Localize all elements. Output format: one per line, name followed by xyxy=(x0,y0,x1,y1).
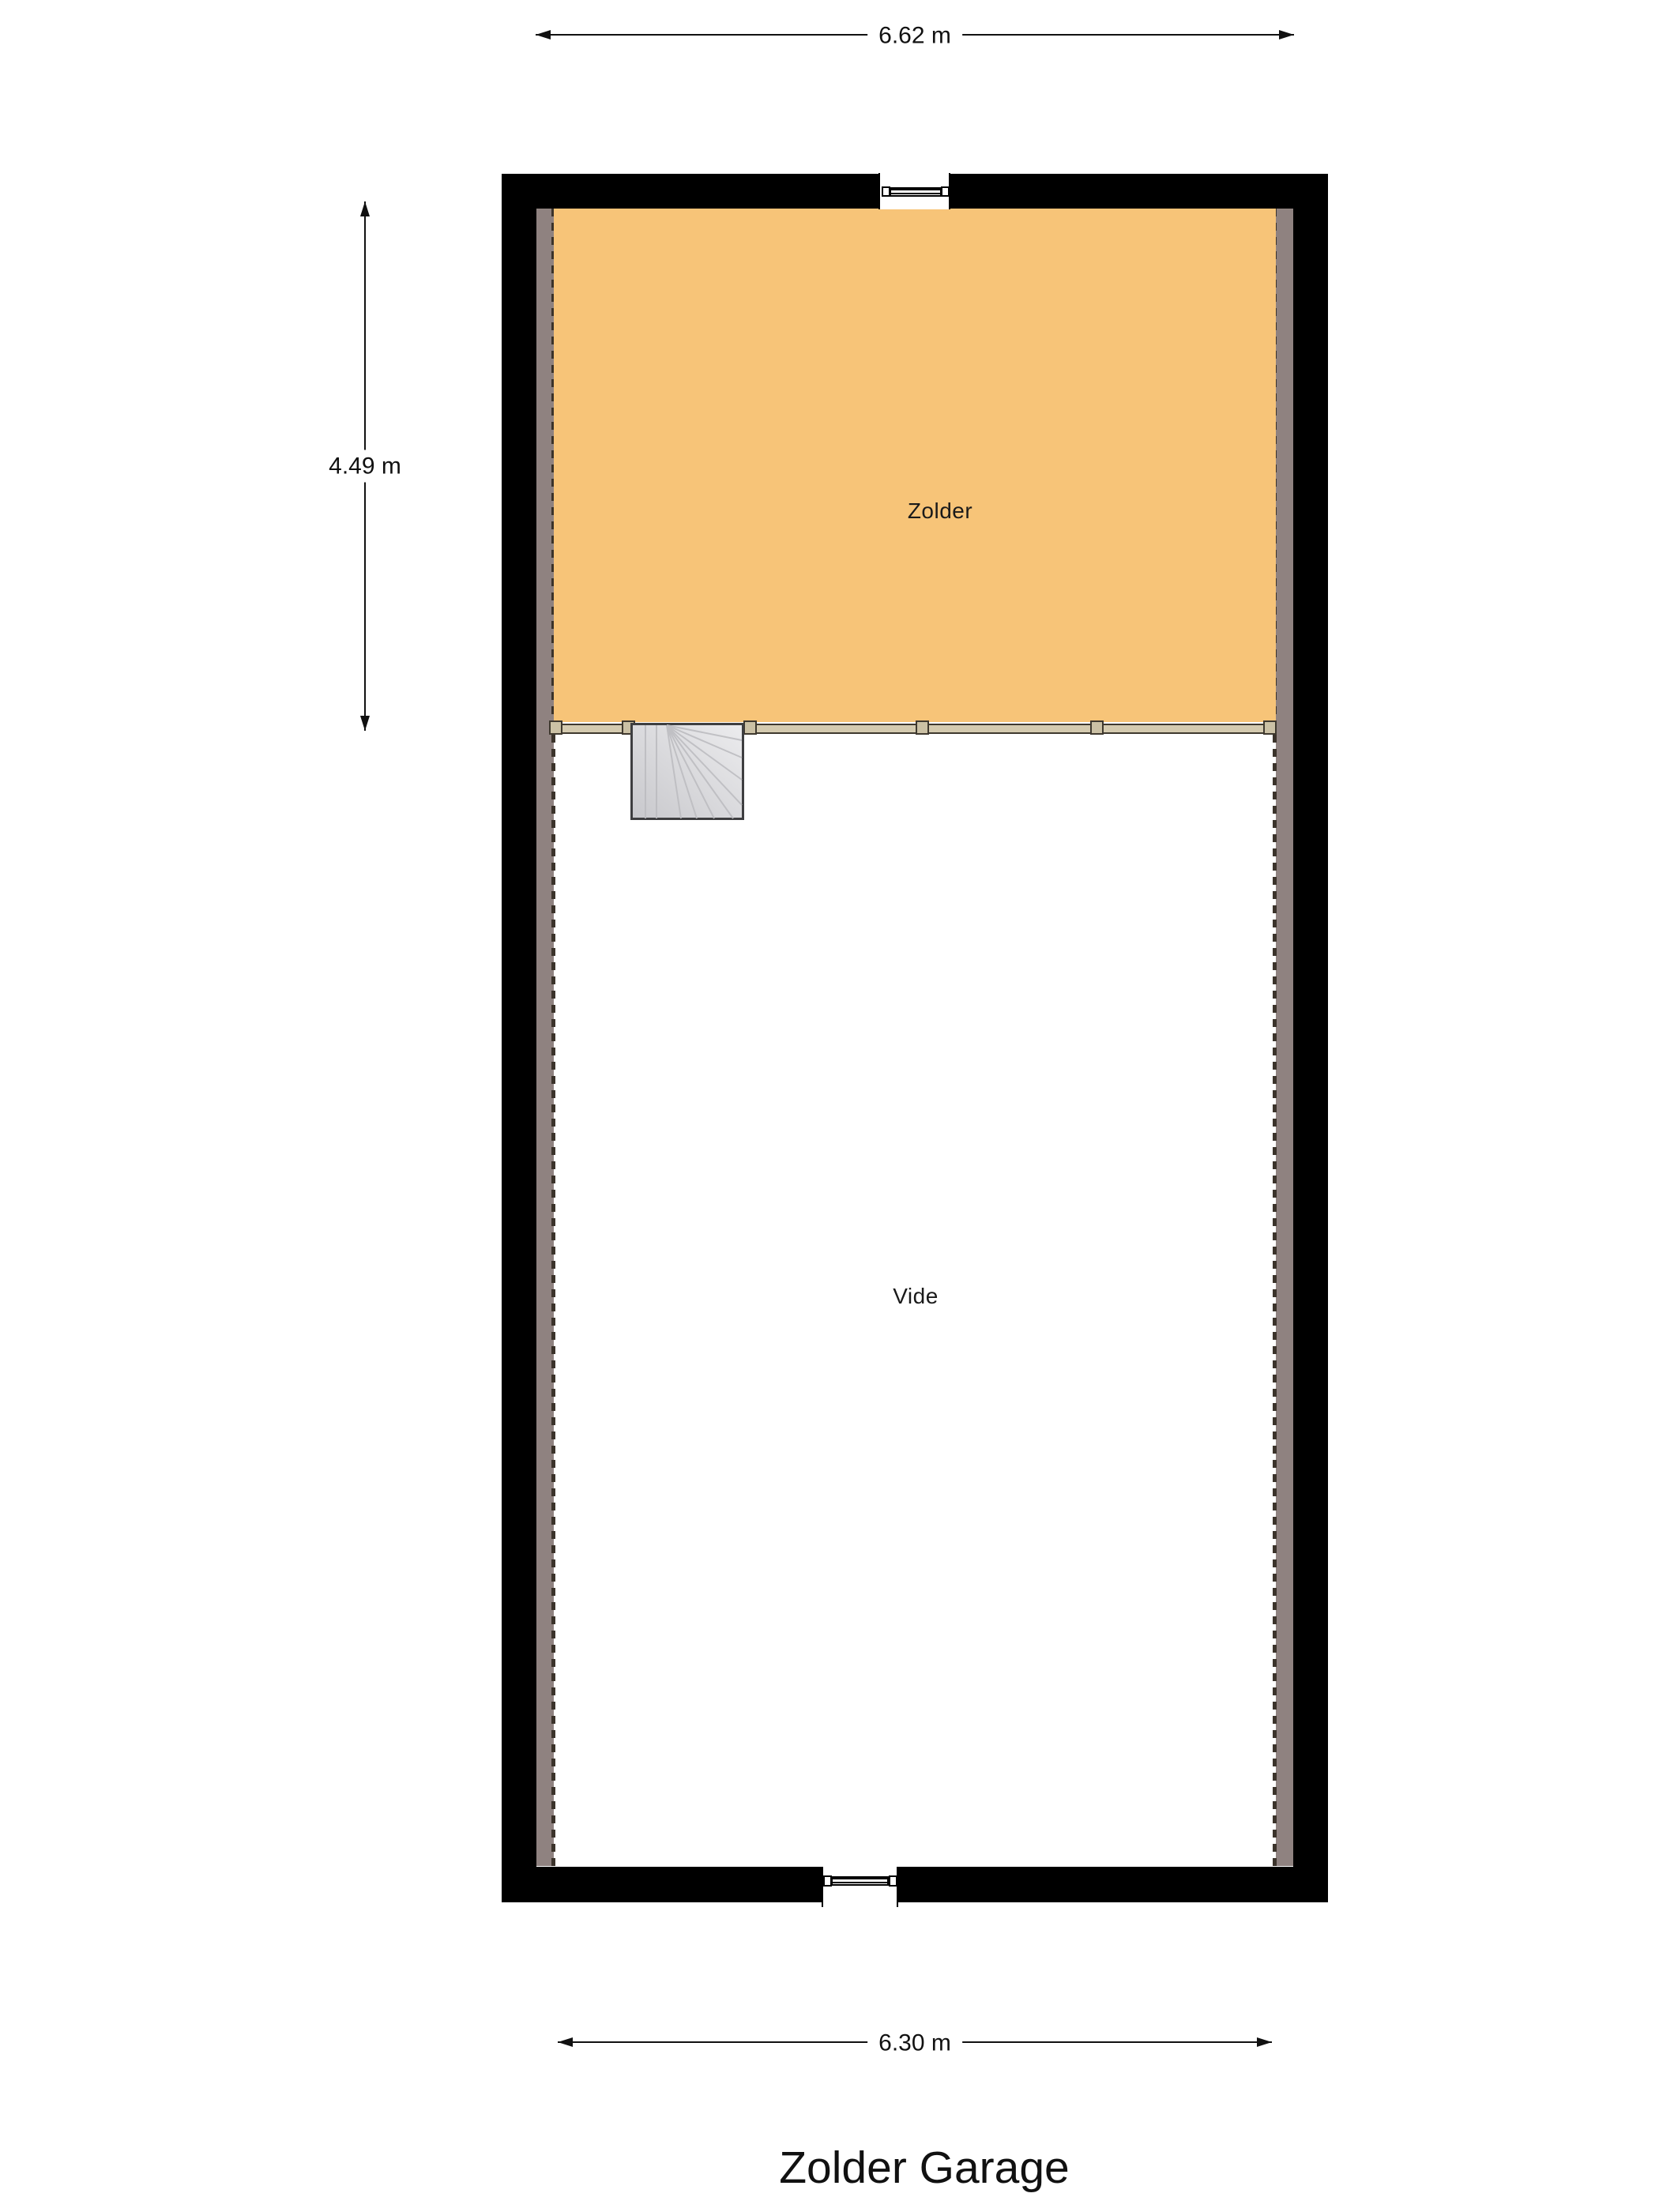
railing-post xyxy=(916,720,929,735)
railing-post xyxy=(1263,720,1277,735)
window-end-cap xyxy=(889,1875,897,1887)
floorplan-canvas: 6.62 m 4.49 m 6.30 m Zolder Vide xyxy=(0,0,1659,2212)
plan-title: Zolder Garage xyxy=(779,2142,1070,2194)
arrowhead-right-icon xyxy=(1279,30,1294,39)
staircase xyxy=(630,723,744,820)
bottom-window-icon xyxy=(831,1876,889,1886)
room-zolder-label: Zolder xyxy=(908,498,972,524)
dimension-left-label: 4.49 m xyxy=(321,450,409,483)
railing-post xyxy=(1090,720,1104,735)
bottom-wall-opening xyxy=(822,1867,898,1907)
window-end-cap xyxy=(941,186,950,197)
room-vide-label: Vide xyxy=(893,1284,939,1309)
railing-post xyxy=(743,720,757,735)
railing-beam-right-segment xyxy=(749,724,1271,734)
railing-post xyxy=(549,720,562,735)
room-zolder xyxy=(554,209,1276,722)
railing-beam-left-segment xyxy=(555,724,631,734)
right-wall-lining xyxy=(1276,209,1293,1866)
arrowhead-right-icon xyxy=(1257,2037,1272,2047)
arrowhead-left-icon xyxy=(536,30,551,39)
top-window-icon xyxy=(890,187,942,197)
arrowhead-up-icon xyxy=(360,201,370,216)
dimension-top-label: 6.62 m xyxy=(867,21,962,51)
arrowhead-down-icon xyxy=(360,716,370,731)
arrowhead-left-icon xyxy=(558,2037,573,2047)
dimension-bottom-label: 6.30 m xyxy=(867,2028,962,2059)
